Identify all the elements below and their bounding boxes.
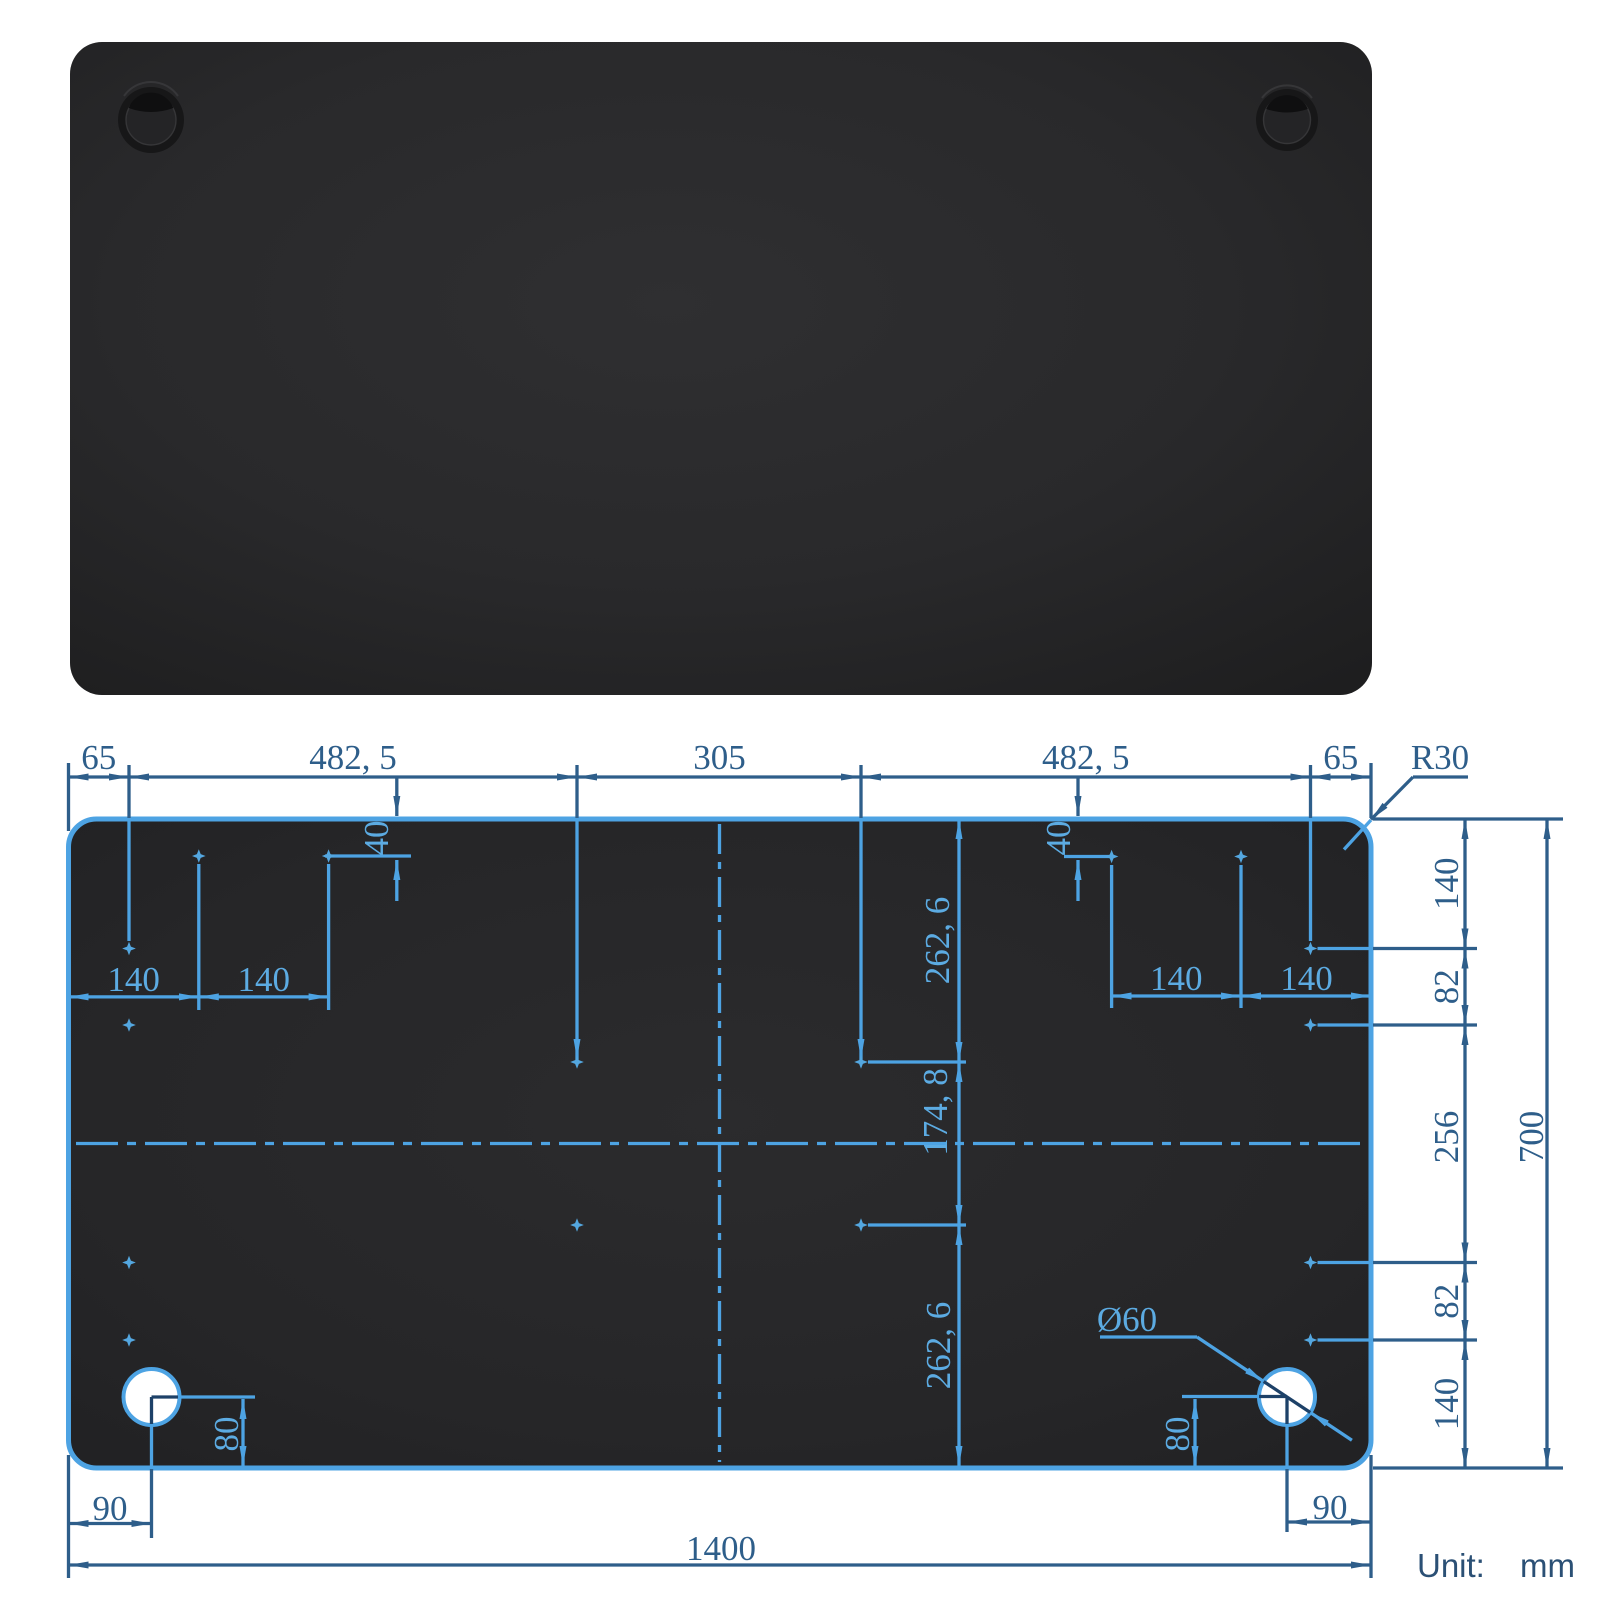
- svg-text:80: 80: [1158, 1417, 1197, 1452]
- svg-text:262, 6: 262, 6: [918, 897, 957, 985]
- svg-text:90: 90: [1313, 1488, 1348, 1527]
- svg-text:65: 65: [81, 738, 116, 777]
- svg-text:174, 8: 174, 8: [916, 1068, 955, 1156]
- svg-text:80: 80: [207, 1417, 246, 1452]
- svg-text:700: 700: [1512, 1111, 1551, 1164]
- svg-text:256: 256: [1427, 1111, 1466, 1164]
- svg-text:82: 82: [1427, 1284, 1466, 1319]
- svg-text:482, 5: 482, 5: [309, 738, 397, 777]
- svg-text:40: 40: [357, 821, 396, 856]
- svg-text:140: 140: [1150, 959, 1203, 998]
- svg-text:140: 140: [237, 960, 290, 999]
- svg-text:140: 140: [1427, 857, 1466, 910]
- svg-text:140: 140: [1427, 1378, 1466, 1431]
- svg-text:mm: mm: [1520, 1547, 1575, 1584]
- svg-text:262, 6: 262, 6: [919, 1302, 958, 1390]
- svg-text:40: 40: [1039, 821, 1078, 856]
- svg-text:1400: 1400: [686, 1529, 756, 1568]
- svg-text:R30: R30: [1411, 738, 1469, 777]
- svg-text:90: 90: [93, 1489, 128, 1528]
- svg-text:Unit:: Unit:: [1417, 1547, 1485, 1584]
- svg-text:140: 140: [1280, 959, 1333, 998]
- svg-text:305: 305: [693, 738, 746, 777]
- svg-text:Ø60: Ø60: [1097, 1300, 1157, 1339]
- svg-text:82: 82: [1427, 969, 1466, 1004]
- svg-text:482, 5: 482, 5: [1042, 738, 1130, 777]
- svg-text:65: 65: [1323, 738, 1358, 777]
- svg-text:140: 140: [107, 960, 160, 999]
